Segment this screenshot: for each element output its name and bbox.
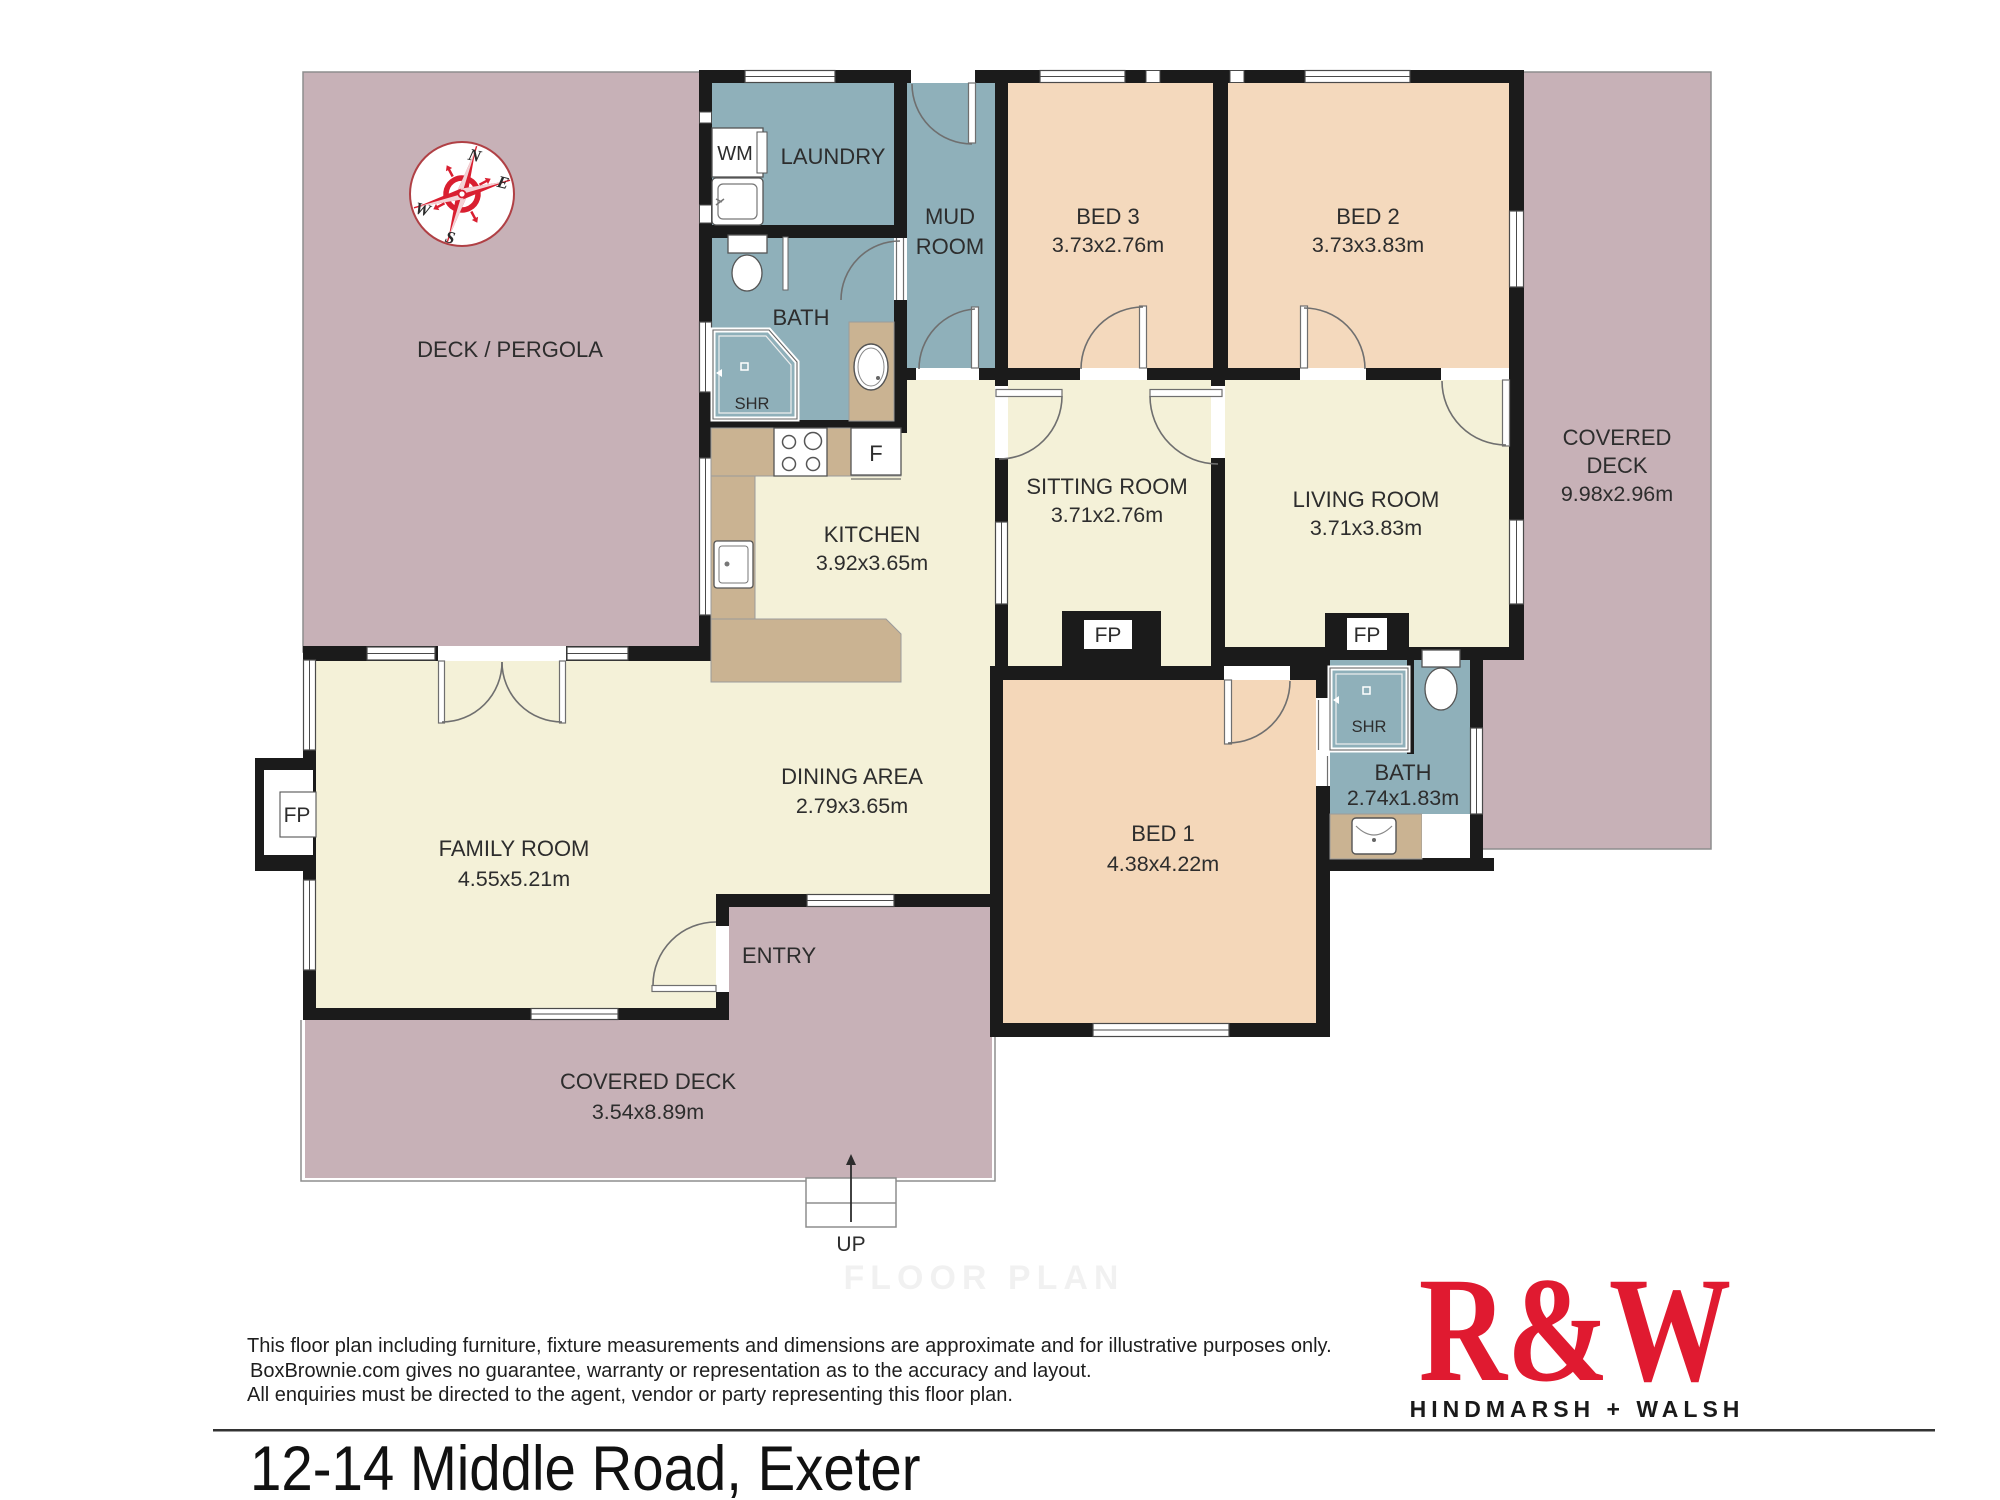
- svg-text:FLOOR PLAN: FLOOR PLAN: [844, 1259, 1125, 1297]
- svg-text:12-14 Middle Road, Exeter: 12-14 Middle Road, Exeter: [250, 1433, 921, 1500]
- svg-text:This floor plan including furn: This floor plan including furniture, fix…: [247, 1335, 1332, 1357]
- svg-text:BED 1: BED 1: [1131, 821, 1195, 846]
- svg-text:COVERED DECK: COVERED DECK: [560, 1069, 736, 1094]
- svg-text:4.55x5.21m: 4.55x5.21m: [458, 867, 570, 891]
- svg-text:All enquiries must be directed: All enquiries must be directed to the ag…: [247, 1384, 1013, 1406]
- svg-text:WM: WM: [717, 143, 753, 165]
- svg-text:BATH: BATH: [1374, 760, 1431, 785]
- svg-text:F: F: [869, 441, 882, 466]
- svg-text:R&W: R&W: [1419, 1246, 1731, 1413]
- svg-text:DINING AREA: DINING AREA: [781, 764, 923, 789]
- svg-text:LIVING ROOM: LIVING ROOM: [1293, 487, 1440, 512]
- svg-text:4.38x4.22m: 4.38x4.22m: [1107, 852, 1219, 876]
- svg-text:FP: FP: [1095, 624, 1122, 647]
- svg-text:LAUNDRY: LAUNDRY: [781, 144, 886, 169]
- svg-text:ENTRY: ENTRY: [742, 943, 816, 968]
- svg-text:2.79x3.65m: 2.79x3.65m: [796, 794, 908, 818]
- svg-text:9.98x2.96m: 9.98x2.96m: [1561, 482, 1673, 506]
- svg-text:2.74x1.83m: 2.74x1.83m: [1347, 786, 1459, 810]
- svg-text:FP: FP: [284, 804, 311, 827]
- svg-text:3.73x3.83m: 3.73x3.83m: [1312, 233, 1424, 257]
- svg-text:MUD: MUD: [925, 204, 975, 229]
- svg-text:BED 2: BED 2: [1336, 204, 1400, 229]
- svg-text:SHR: SHR: [735, 395, 770, 413]
- svg-text:FAMILY ROOM: FAMILY ROOM: [439, 836, 590, 861]
- svg-text:BoxBrownie.com gives no guaran: BoxBrownie.com gives no guarantee, warra…: [250, 1360, 1092, 1382]
- svg-text:HINDMARSH + WALSH: HINDMARSH + WALSH: [1410, 1396, 1745, 1422]
- svg-text:DECK / PERGOLA: DECK / PERGOLA: [417, 337, 603, 362]
- svg-text:DECK: DECK: [1586, 453, 1647, 478]
- svg-text:3.71x2.76m: 3.71x2.76m: [1051, 503, 1163, 527]
- svg-text:KITCHEN: KITCHEN: [824, 522, 921, 547]
- svg-text:FP: FP: [1354, 624, 1381, 647]
- svg-text:UP: UP: [836, 1233, 865, 1256]
- svg-text:3.71x3.83m: 3.71x3.83m: [1310, 516, 1422, 540]
- svg-text:BATH: BATH: [772, 305, 829, 330]
- svg-text:COVERED: COVERED: [1563, 425, 1672, 450]
- svg-text:BED 3: BED 3: [1076, 204, 1140, 229]
- svg-text:3.73x2.76m: 3.73x2.76m: [1052, 233, 1164, 257]
- svg-text:SHR: SHR: [1352, 718, 1387, 736]
- svg-text:ROOM: ROOM: [916, 234, 984, 259]
- svg-text:SITTING ROOM: SITTING ROOM: [1026, 474, 1187, 499]
- svg-text:3.54x8.89m: 3.54x8.89m: [592, 1100, 704, 1124]
- svg-text:3.92x3.65m: 3.92x3.65m: [816, 551, 928, 575]
